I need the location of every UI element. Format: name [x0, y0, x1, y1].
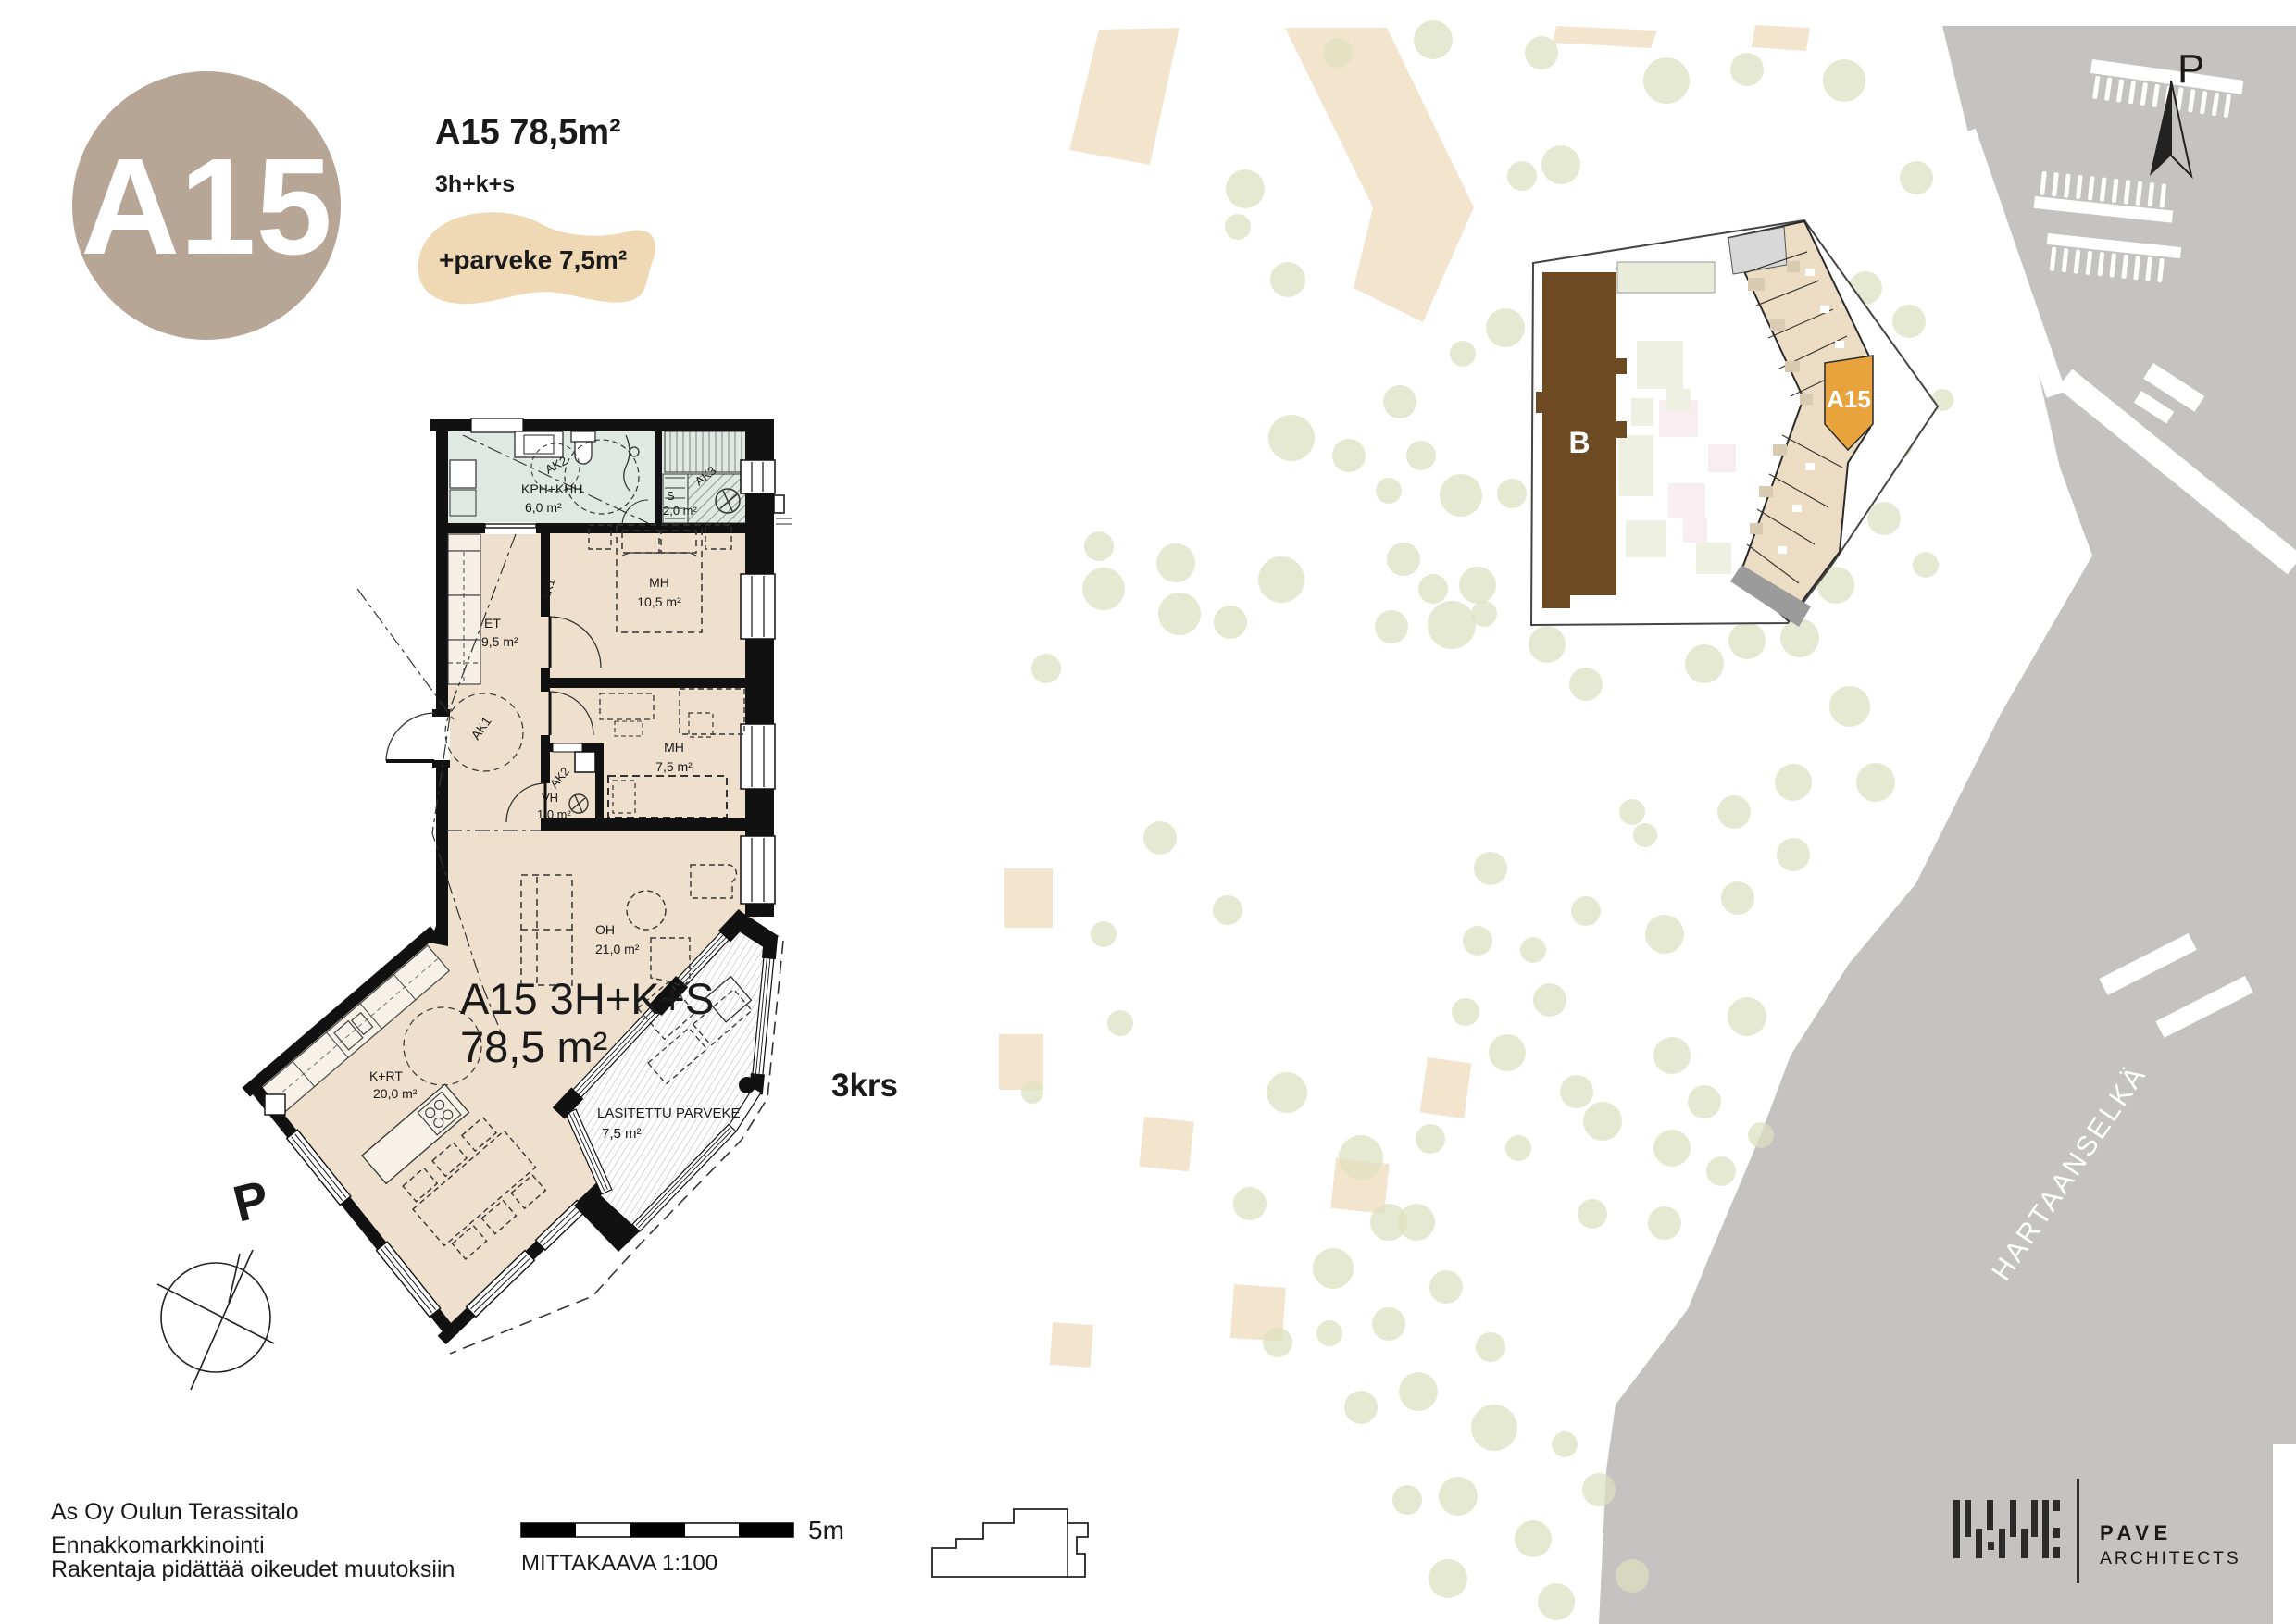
svg-text:S: S	[667, 489, 675, 503]
svg-text:21,0 m²: 21,0 m²	[595, 942, 640, 956]
svg-text:78,5 m²: 78,5 m²	[460, 1022, 607, 1071]
svg-text:P: P	[2177, 46, 2204, 92]
svg-text:MITTAKAAVA 1:100: MITTAKAAVA 1:100	[521, 1551, 717, 1576]
svg-text:ET: ET	[484, 616, 501, 631]
svg-text:A15 3H+K+S: A15 3H+K+S	[460, 974, 714, 1023]
svg-text:10,5 m²: 10,5 m²	[637, 594, 681, 609]
svg-text:MH: MH	[649, 575, 669, 590]
svg-text:+parveke 7,5m²: +parveke 7,5m²	[439, 245, 627, 274]
svg-text:A15: A15	[81, 131, 332, 283]
svg-text:3h+k+s: 3h+k+s	[435, 171, 515, 197]
svg-text:VH: VH	[542, 791, 558, 805]
svg-text:9,5 m²: 9,5 m²	[481, 634, 518, 649]
svg-text:ARCHITECTS: ARCHITECTS	[2100, 1548, 2241, 1568]
svg-text:2,0 m²: 2,0 m²	[663, 504, 698, 518]
svg-text:OH: OH	[595, 922, 615, 937]
svg-text:LASITETTU PARVEKE: LASITETTU PARVEKE	[597, 1106, 741, 1121]
svg-text:20,0 m²: 20,0 m²	[373, 1086, 418, 1101]
svg-text:A15 78,5m²: A15 78,5m²	[435, 113, 621, 152]
svg-text:B: B	[1568, 426, 1590, 459]
svg-text:7,5 m²: 7,5 m²	[655, 759, 693, 774]
svg-text:Rakentaja pidättää oikeudet mu: Rakentaja pidättää oikeudet muutoksiin	[51, 1556, 455, 1582]
svg-text:A15: A15	[1827, 385, 1871, 413]
svg-text:KPH+KHH: KPH+KHH	[521, 481, 583, 496]
svg-text:5m: 5m	[808, 1516, 844, 1544]
svg-text:6,0 m²: 6,0 m²	[525, 500, 562, 515]
svg-text:Ennakkomarkkinointi: Ennakkomarkkinointi	[51, 1532, 265, 1558]
svg-text:MH: MH	[664, 740, 684, 755]
svg-text:7,5 m²: 7,5 m²	[602, 1126, 642, 1142]
svg-text:K+RT: K+RT	[369, 1068, 403, 1083]
svg-text:1,0 m²: 1,0 m²	[537, 807, 572, 821]
svg-text:As Oy Oulun Terassitalo: As Oy Oulun Terassitalo	[51, 1499, 299, 1525]
svg-text:3krs: 3krs	[831, 1068, 898, 1104]
svg-text:PAVE: PAVE	[2100, 1521, 2173, 1544]
